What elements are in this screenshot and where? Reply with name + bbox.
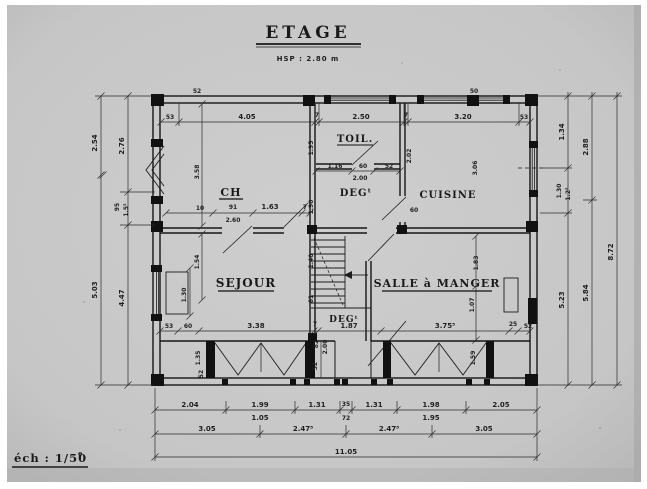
floor-plan-drawing: ETAGE HSP : 2.80 m éch : 1/50 e (0, 0, 647, 489)
dim: 4.47 (118, 289, 126, 306)
dim: 1.35 (195, 351, 202, 366)
scale-note: éch : 1/50 e (12, 449, 88, 467)
dim: 1.31 (365, 401, 382, 409)
room-label-deg-upper: DEGᵗ (340, 188, 373, 199)
dim: 3.06 (472, 161, 479, 176)
dim: 1.98 (422, 401, 439, 409)
room-label-cuisine: CUISINE (419, 190, 476, 201)
dim: 2.88 (582, 138, 590, 155)
dim: 1.30 (556, 184, 563, 199)
dim: 1.07 (469, 298, 476, 313)
dim: 1.95 (308, 141, 315, 156)
dim: 1.83 (473, 256, 480, 271)
dim: 5.84 (582, 284, 590, 301)
dim: 1.40 (308, 254, 315, 269)
dim: 53 (165, 323, 173, 330)
room-label-deg-lower: DEGᵗ (329, 315, 359, 325)
dim: 50 (470, 88, 478, 95)
dim: 35 (342, 401, 350, 408)
dim-total-width: 11.05 (335, 448, 357, 456)
paper-edge-shadow (634, 5, 641, 482)
dim: 7 (404, 112, 408, 119)
dim: 1.95 (422, 414, 439, 422)
room-label-toil: TOIL. (337, 134, 373, 145)
dim: 1.16 (328, 163, 343, 170)
dim: 2.02 (406, 149, 413, 164)
dim: 95 (114, 203, 121, 211)
dim: 1.5⁵ (123, 203, 130, 217)
dim: 2.47⁵ (293, 425, 313, 433)
dim: 52 (524, 323, 532, 330)
dim: 5.03 (91, 281, 99, 298)
dim: 52 (193, 88, 201, 95)
scale-text: éch : 1/50 (14, 451, 87, 465)
dim: 60 (410, 207, 418, 214)
page-title: ETAGE (265, 23, 350, 43)
dim: 2.60 (226, 217, 241, 224)
dim: 2.04 (181, 401, 198, 409)
dim: 1.2⁵ (565, 187, 572, 201)
dim: 2.47⁵ (379, 425, 399, 433)
dim: 52 (385, 163, 393, 170)
dim: 3.05 (198, 425, 215, 433)
dim: 60 (359, 163, 367, 170)
room-label-sejour: SEJOUR (216, 276, 276, 290)
dim: 52 (312, 362, 319, 370)
dim: 60 (184, 323, 192, 330)
dim: 7 (303, 204, 307, 211)
dim: 1.05 (251, 414, 268, 422)
dim: 1.34 (558, 123, 566, 140)
dim: 52 (198, 370, 205, 378)
dim: 3.20 (454, 113, 471, 121)
dim: 3.38 (247, 322, 264, 330)
dim: 10 (196, 205, 204, 212)
dim: 7 (315, 112, 319, 119)
dim: 2.54 (91, 134, 99, 151)
dim: 5.23 (558, 291, 566, 308)
dim-total-height: 8.72 (607, 243, 615, 260)
dim: 91 (229, 204, 237, 211)
dim: 7 (313, 321, 317, 328)
dim: 1.59 (470, 351, 477, 366)
room-label-ch: CH (220, 186, 241, 199)
dim: 53 (166, 114, 174, 121)
dim: 2.00 (322, 340, 329, 355)
dim: 1.31 (308, 401, 325, 409)
dim: 82 (313, 340, 320, 348)
room-label-salle-a-manger: SALLE à MANGER (374, 277, 501, 290)
dim: 1.99 (251, 401, 268, 409)
ceiling-height-note: HSP : 2.80 m (277, 55, 340, 63)
dim: 2.76 (118, 137, 126, 154)
dim: 4.05 (238, 113, 255, 121)
scale-superscript: e (78, 449, 83, 458)
dim: 2.00 (353, 175, 368, 182)
dim: 72 (342, 415, 350, 422)
dim: 2.05 (492, 401, 509, 409)
dim: 61 (308, 295, 315, 303)
dim: 1.90 (308, 200, 315, 215)
dim: 1.54 (194, 255, 201, 270)
dim: 2.50 (352, 113, 369, 121)
dim: 3.05 (475, 425, 492, 433)
paper-background (7, 5, 641, 482)
dim: 1.63 (261, 203, 278, 211)
dim: 3.75⁵ (435, 322, 455, 330)
dim: 1.30 (181, 288, 188, 303)
paper-bottom-shadow (7, 468, 641, 482)
dim: 25 (509, 321, 517, 328)
dim: 53 (520, 114, 528, 121)
dim: 3.58 (194, 165, 201, 180)
